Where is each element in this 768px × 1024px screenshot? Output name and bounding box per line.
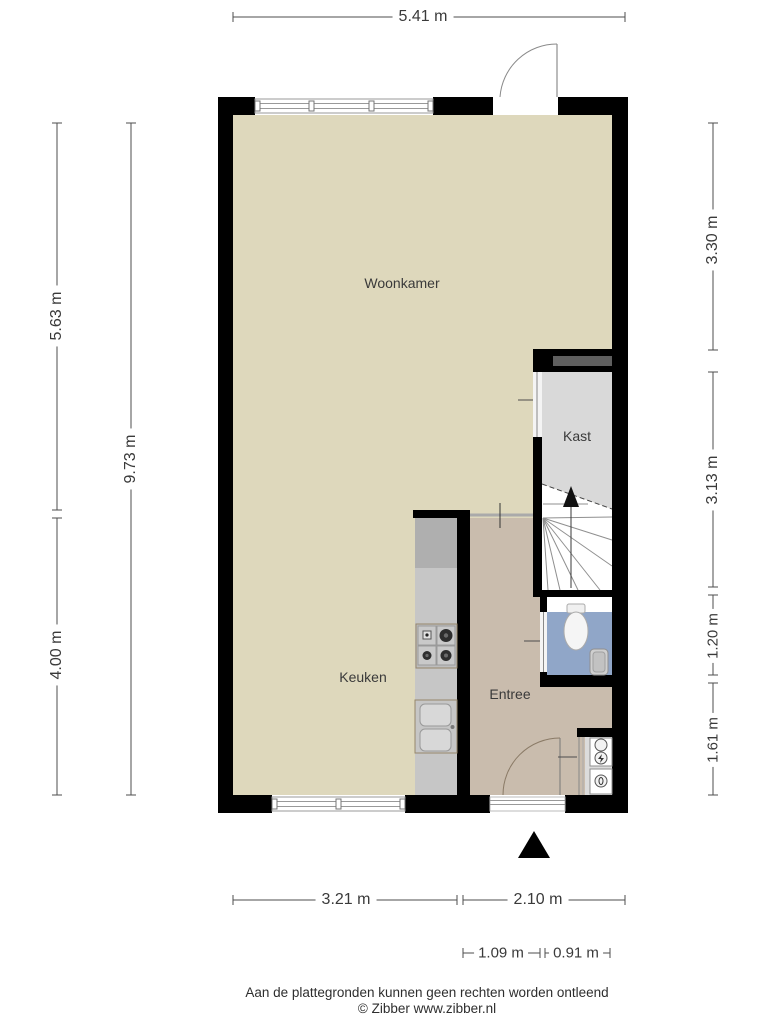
dim-bottom-left: 3.21 m	[316, 890, 377, 910]
footer-disclaimer: Aan de plattegronden kunnen geen rechten…	[245, 985, 608, 1000]
dim-right-middle: 3.13 m	[703, 450, 723, 511]
balcony-door	[500, 44, 557, 97]
meter-closet-fixtures	[590, 738, 612, 794]
dim-right-toilet: 1.20 m	[705, 609, 722, 663]
dim-left-total: 9.73 m	[121, 429, 141, 490]
room-label-kast: Kast	[563, 429, 591, 443]
kitchen-tall-cabinet	[415, 518, 457, 568]
toilet-bowl	[564, 612, 588, 650]
dim-left-lower: 4.00 m	[47, 625, 67, 686]
room-label-woonkamer: Woonkamer	[364, 276, 439, 290]
room-label-entree: Entree	[489, 687, 530, 701]
front-door-threshold	[490, 797, 565, 811]
dim-bottom-inner-right: 0.91 m	[549, 945, 603, 962]
dim-left-upper: 5.63 m	[47, 286, 67, 347]
stove-hob	[416, 624, 457, 668]
floor-areas	[233, 115, 612, 795]
footer-copyright: © Zibber www.zibber.nl	[358, 1001, 496, 1016]
dim-bottom-right: 2.10 m	[508, 890, 569, 910]
room-label-keuken: Keuken	[339, 670, 386, 684]
window-top	[255, 99, 433, 113]
kast-ceiling-beam	[553, 356, 612, 366]
north-arrow-icon	[518, 831, 550, 858]
floorplan-page: 5.41 m 5.63 m 4.00 m 9.73 m 3.30 m 3.13 …	[0, 0, 768, 1024]
dim-bottom-inner-left: 1.09 m	[474, 945, 528, 962]
toilet-sink-basin	[593, 652, 605, 672]
dim-top-width: 5.41 m	[393, 7, 454, 27]
floorplan-drawing	[0, 0, 768, 1024]
dim-right-bottom: 1.61 m	[705, 713, 722, 767]
water-meter-icon	[595, 775, 607, 787]
dim-right-top: 3.30 m	[703, 210, 723, 271]
window-bottom	[272, 797, 405, 811]
meter-dial-icon	[595, 739, 607, 751]
kitchen-sink	[415, 700, 457, 753]
